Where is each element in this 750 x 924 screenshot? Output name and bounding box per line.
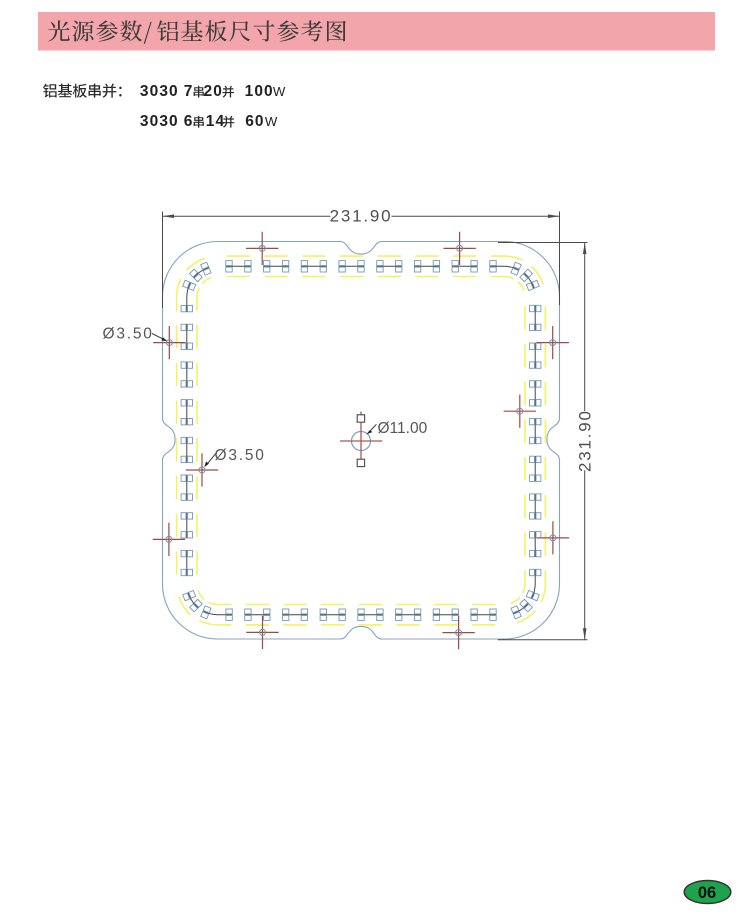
svg-text:W: W [265,114,278,129]
svg-text:W: W [273,84,286,99]
svg-text:6: 6 [184,113,194,130]
svg-text:06: 06 [698,884,716,902]
svg-text:231.90: 231.90 [330,207,393,226]
svg-text:3030: 3030 [140,83,179,100]
svg-text:14: 14 [206,113,225,130]
svg-text:100: 100 [245,83,274,100]
svg-text:60: 60 [245,113,264,130]
svg-text:7: 7 [184,83,194,100]
svg-text:Ø11.00: Ø11.00 [378,420,428,437]
svg-text:231.90: 231.90 [575,409,594,472]
svg-text:3030: 3030 [140,113,179,130]
svg-text:20: 20 [204,83,223,100]
svg-text:Ø3.50: Ø3.50 [215,447,266,464]
svg-text:Ø3.50: Ø3.50 [103,325,154,342]
